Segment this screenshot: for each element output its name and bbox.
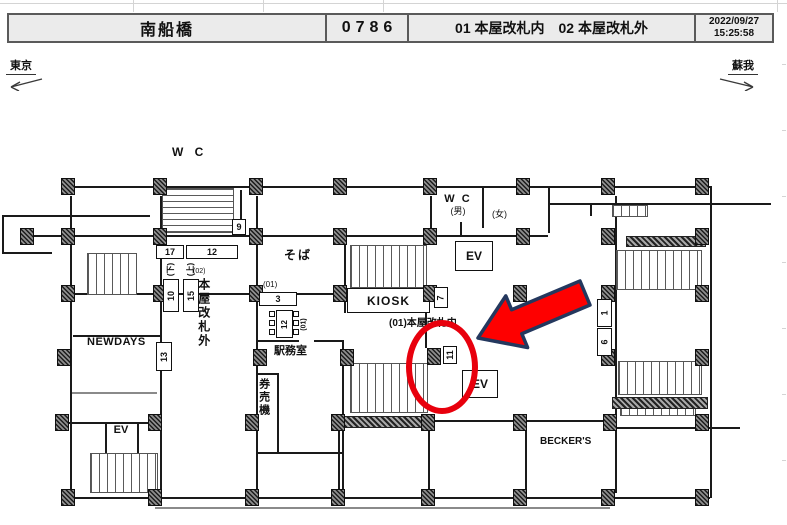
wall-line <box>710 186 712 498</box>
pillar <box>695 285 709 302</box>
grid-tick <box>782 394 786 395</box>
floor-plan: KIOSK EV EV W C そば W C (男) (女) NEWDAYS 駅… <box>0 0 787 525</box>
wall-line <box>613 427 740 429</box>
wall-line <box>590 203 592 216</box>
wall-line <box>344 237 346 313</box>
camera-box-15[interactable]: 15 <box>183 279 199 312</box>
pillar <box>421 489 435 506</box>
stairs <box>618 361 702 395</box>
wall-line <box>338 428 340 494</box>
grid-tick <box>782 64 786 65</box>
wc-womens-label: (女) <box>492 209 507 219</box>
stairs <box>162 188 234 233</box>
pillar <box>61 285 75 302</box>
pillar <box>340 349 354 366</box>
camera-box-10[interactable]: 10 <box>163 279 179 312</box>
gate-tab-icon <box>269 329 275 335</box>
wc-mens-sub: (男) <box>436 206 480 216</box>
pillar <box>333 228 347 245</box>
pillar <box>249 178 263 195</box>
camera-10-direction: (下) <box>163 261 179 277</box>
wall-line <box>256 452 344 454</box>
stairs <box>616 250 702 290</box>
pillar <box>603 414 617 431</box>
pillar <box>61 489 75 506</box>
camera-box-7[interactable]: 7 <box>434 287 448 308</box>
stairs <box>612 205 648 217</box>
pillar <box>423 228 437 245</box>
pillar <box>421 414 435 431</box>
pillar <box>331 414 345 431</box>
wall-line <box>525 420 527 498</box>
grid-tick <box>782 460 786 461</box>
pillar <box>695 178 709 195</box>
grid-tick <box>263 0 264 12</box>
wall-line <box>137 422 139 455</box>
wall-line <box>2 252 52 254</box>
grid-tick <box>383 0 384 12</box>
stairs <box>87 253 137 295</box>
wall-line <box>2 215 4 253</box>
pillar <box>513 489 527 506</box>
gate-unit-label: (01) <box>298 310 310 338</box>
pillar <box>331 489 345 506</box>
pillar <box>57 349 71 366</box>
wall-line <box>460 222 462 236</box>
wc-top-label: W C <box>172 146 207 160</box>
newdays-label: NEWDAYS <box>87 336 146 349</box>
pillar <box>153 178 167 195</box>
escalator-hatch <box>612 397 708 409</box>
pillar <box>333 285 347 302</box>
grid-tick <box>782 328 786 329</box>
wall-line <box>482 188 484 228</box>
pillar <box>245 414 259 431</box>
ticket-gate-icon[interactable]: 12 <box>276 310 293 338</box>
ev-top-label: EV <box>466 249 482 263</box>
wall-line <box>615 196 617 493</box>
camera-map-screen: 南船橋 0786 01 本屋改札内 02 本屋改札外 2022/09/27 15… <box>0 0 787 525</box>
camera-box-9[interactable]: 9 <box>232 219 246 235</box>
pillar <box>695 414 709 431</box>
camera-box-6[interactable]: 6 <box>597 328 612 356</box>
wall-line <box>548 188 550 233</box>
wall-line <box>548 203 771 205</box>
pillar <box>61 178 75 195</box>
wc-mens-label: W C (男) <box>436 193 480 216</box>
pillar <box>695 489 709 506</box>
grid-tick <box>0 3 787 4</box>
wall-line <box>70 392 157 394</box>
camera-box-1[interactable]: 1 <box>597 299 612 327</box>
wall-line <box>428 428 430 494</box>
pillar <box>333 178 347 195</box>
stairs <box>350 245 427 288</box>
pillar <box>513 414 527 431</box>
wall-line <box>256 340 299 342</box>
pillar <box>153 228 167 245</box>
grid-tick <box>777 0 778 12</box>
soba-label: そば <box>284 249 312 263</box>
kiosk-label: KIOSK <box>367 294 410 308</box>
camera-box-13[interactable]: 13 <box>156 342 172 371</box>
pillar <box>249 228 263 245</box>
ev-shaft-label: EV <box>105 424 137 437</box>
pillar <box>245 489 259 506</box>
pillar <box>601 178 615 195</box>
grid-tick <box>782 130 786 131</box>
highlight-arrow <box>470 274 598 356</box>
camera-15-direction: (上) <box>183 261 199 277</box>
pillar <box>601 489 615 506</box>
wall-line <box>277 373 279 453</box>
pillar <box>148 414 162 431</box>
camera-box-17[interactable]: 17 <box>156 245 184 259</box>
pillar <box>423 178 437 195</box>
camera-box-12-top[interactable]: 12 <box>186 245 238 259</box>
wall-line <box>314 340 344 342</box>
wall-line <box>256 373 277 375</box>
escalator-hatch <box>344 416 430 428</box>
stairs <box>90 453 158 493</box>
grid-tick <box>782 262 786 263</box>
pillar <box>695 349 709 366</box>
camera-box-3[interactable]: 3 <box>259 292 297 306</box>
grid-tick <box>133 0 134 12</box>
wall-line <box>2 215 150 217</box>
pillar <box>601 228 615 245</box>
wall-line <box>155 507 610 509</box>
pillar <box>253 349 267 366</box>
pillar <box>20 228 34 245</box>
wc-mens-title: W C <box>436 193 480 206</box>
pillar <box>148 489 162 506</box>
gate-group3-label: (01) <box>263 280 277 289</box>
gate-tab-icon <box>269 320 275 326</box>
pillar <box>516 228 530 245</box>
pillar <box>516 178 530 195</box>
escalator-hatch <box>626 236 706 247</box>
grid-tick <box>782 196 786 197</box>
pillar <box>695 228 709 245</box>
wall-line <box>27 235 548 237</box>
office-label: 駅務室 <box>274 345 307 358</box>
gate-tab-icon <box>269 311 275 317</box>
pillar <box>55 414 69 431</box>
beckers-label: BECKER'S <box>540 436 591 448</box>
pillar <box>61 228 75 245</box>
highlight-circle <box>406 320 478 414</box>
elevator-top: EV <box>455 241 493 271</box>
kiosk-room: KIOSK <box>347 288 430 313</box>
